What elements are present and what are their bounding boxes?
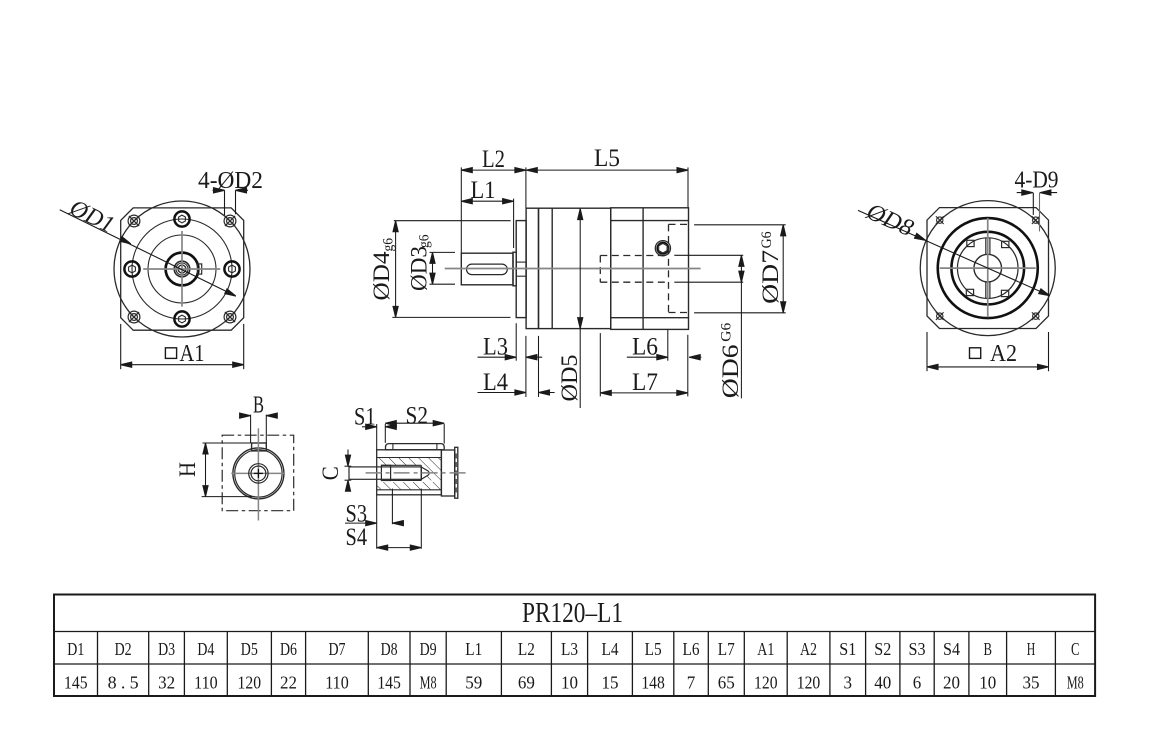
svg-text:C: C — [318, 466, 343, 480]
svg-text:6: 6 — [913, 673, 922, 693]
svg-text:L7: L7 — [718, 639, 735, 659]
svg-text:L4: L4 — [483, 369, 508, 396]
svg-text:69: 69 — [518, 673, 535, 693]
svg-text:S1: S1 — [839, 639, 856, 659]
svg-text:C: C — [1071, 639, 1080, 659]
svg-text:A1: A1 — [180, 341, 205, 367]
svg-text:L2: L2 — [482, 146, 505, 173]
svg-text:10: 10 — [979, 673, 996, 693]
svg-text:10: 10 — [561, 673, 578, 693]
svg-text:A2: A2 — [800, 639, 817, 659]
svg-text:D1: D1 — [67, 639, 84, 659]
svg-text:S4: S4 — [943, 639, 960, 659]
svg-text:4-ØD2: 4-ØD2 — [198, 168, 263, 194]
svg-text:L7: L7 — [632, 369, 658, 396]
svg-text:148: 148 — [641, 673, 665, 693]
svg-text:S4: S4 — [346, 524, 368, 551]
svg-text:H: H — [1027, 639, 1036, 659]
svg-text:L5: L5 — [645, 639, 662, 659]
svg-text:ØD6: ØD6 — [718, 344, 743, 398]
svg-text:D6: D6 — [280, 639, 297, 659]
svg-text:D4: D4 — [197, 639, 214, 659]
svg-text:L3: L3 — [561, 639, 578, 659]
svg-text:4-D9: 4-D9 — [1015, 168, 1059, 194]
svg-text:B: B — [253, 393, 264, 419]
svg-text:L5: L5 — [594, 145, 620, 172]
svg-text:L3: L3 — [483, 334, 508, 361]
svg-text:22: 22 — [280, 673, 297, 693]
svg-text:35: 35 — [1023, 673, 1040, 693]
svg-text:120: 120 — [797, 673, 821, 693]
svg-text:120: 120 — [238, 673, 262, 693]
svg-text:L2: L2 — [518, 639, 535, 659]
svg-text:8.5: 8.5 — [108, 673, 139, 693]
svg-text:L6: L6 — [632, 334, 658, 361]
svg-text:110: 110 — [194, 673, 218, 693]
svg-text:L1: L1 — [471, 177, 496, 204]
svg-text:120: 120 — [754, 673, 778, 693]
svg-text:40: 40 — [874, 673, 891, 693]
svg-text:B: B — [984, 639, 993, 659]
svg-text:15: 15 — [602, 673, 619, 693]
svg-text:D2: D2 — [115, 639, 132, 659]
svg-text:S1: S1 — [354, 404, 376, 431]
svg-text:D7: D7 — [329, 639, 346, 659]
svg-text:G6: G6 — [719, 322, 735, 342]
svg-text:M8: M8 — [420, 673, 437, 693]
svg-text:59: 59 — [465, 673, 482, 693]
svg-text:D5: D5 — [241, 639, 258, 659]
svg-text:M8: M8 — [1067, 673, 1084, 693]
svg-text:L1: L1 — [465, 639, 482, 659]
svg-text:145: 145 — [64, 673, 88, 693]
svg-text:A2: A2 — [990, 341, 1017, 367]
svg-text:65: 65 — [718, 673, 735, 693]
svg-text:ØD7: ØD7 — [758, 250, 783, 304]
svg-text:L4: L4 — [602, 639, 619, 659]
svg-text:D8: D8 — [381, 639, 398, 659]
svg-text:H: H — [175, 462, 200, 477]
svg-text:S2: S2 — [874, 639, 891, 659]
svg-text:L6: L6 — [683, 639, 700, 659]
svg-text:7: 7 — [687, 673, 696, 693]
svg-text:32: 32 — [158, 673, 175, 693]
svg-text:D9: D9 — [420, 639, 437, 659]
svg-text:g6: g6 — [381, 238, 397, 252]
svg-text:D3: D3 — [158, 639, 175, 659]
svg-text:ØD4: ØD4 — [369, 251, 394, 301]
svg-text:20: 20 — [943, 673, 960, 693]
svg-text:PR120–L1: PR120–L1 — [522, 598, 623, 629]
svg-text:3: 3 — [844, 673, 853, 693]
svg-text:S2: S2 — [406, 403, 429, 430]
svg-text:g6: g6 — [417, 234, 433, 248]
svg-text:ØD5: ØD5 — [557, 355, 582, 402]
svg-text:G6: G6 — [759, 231, 775, 248]
svg-text:145: 145 — [377, 673, 401, 693]
svg-text:A1: A1 — [757, 639, 774, 659]
svg-text:S3: S3 — [909, 639, 926, 659]
svg-text:ØD3: ØD3 — [406, 246, 431, 291]
svg-text:110: 110 — [325, 673, 349, 693]
